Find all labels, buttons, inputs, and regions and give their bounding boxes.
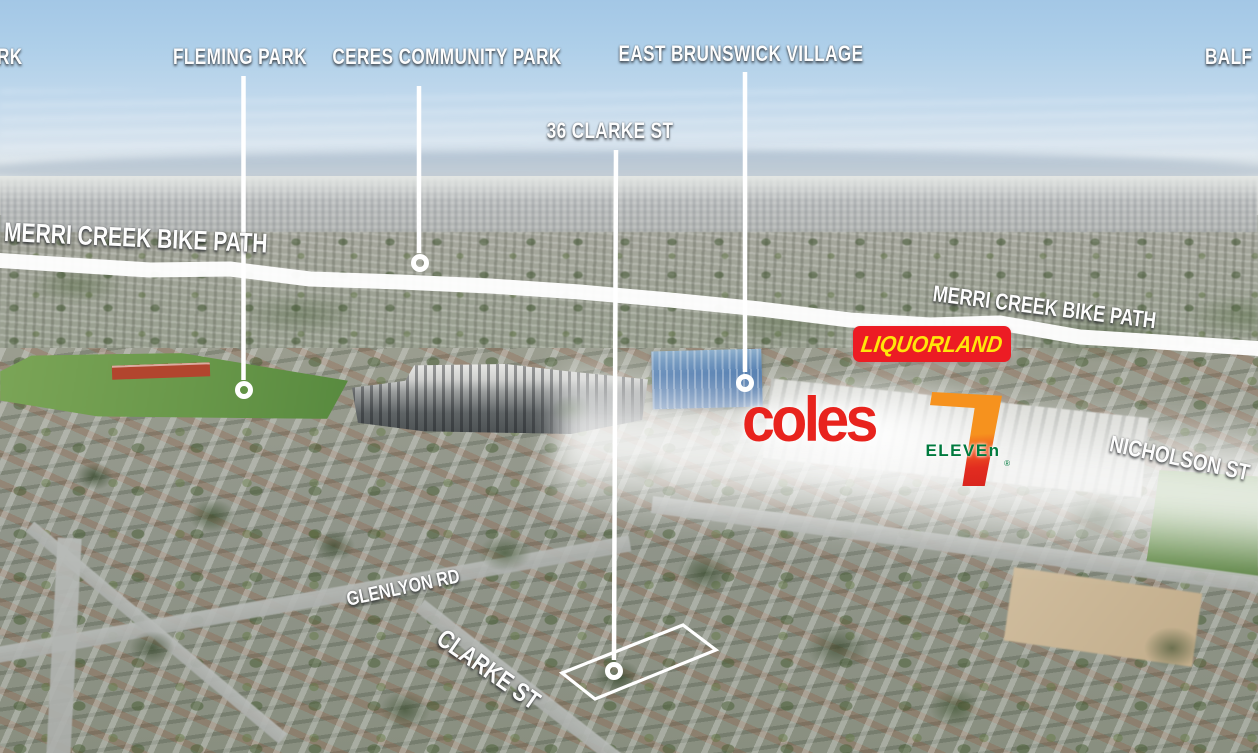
label-36-clarke-st: 36 CLARKE ST [547, 120, 674, 142]
label-partial-park-left: RK [0, 46, 23, 68]
seven-eleven-logo: ELEVEn ® [916, 392, 1010, 490]
ring-marker-fleming-park [238, 384, 251, 397]
coles-logo: coles [742, 384, 875, 456]
ring-marker-ceres [414, 257, 427, 270]
leader-line-36-clarke-st [614, 150, 616, 660]
liquorland-logo: LIQUORLAND [853, 326, 1011, 362]
label-partial-park-right: BALF [1205, 46, 1252, 68]
map-annotations-overlay [0, 0, 1258, 753]
seven-eleven-wordmark: ELEVEn [916, 441, 1010, 461]
aerial-location-map: LIQUORLAND coles ELEVEn ® RK FLEMING PAR… [0, 0, 1258, 753]
label-fleming-park: FLEMING PARK [173, 46, 307, 68]
label-east-brunswick-village: EAST BRUNSWICK VILLAGE [618, 43, 863, 65]
liquorland-logo-text: LIQUORLAND [860, 331, 1005, 358]
label-ceres-community-park: CERES COMMUNITY PARK [332, 46, 561, 68]
registered-trademark-symbol: ® [1004, 459, 1010, 468]
seven-eleven-numeral-7 [930, 392, 1002, 486]
ring-marker-36-clarke-st [608, 665, 621, 678]
property-boundary-outline [562, 625, 716, 699]
